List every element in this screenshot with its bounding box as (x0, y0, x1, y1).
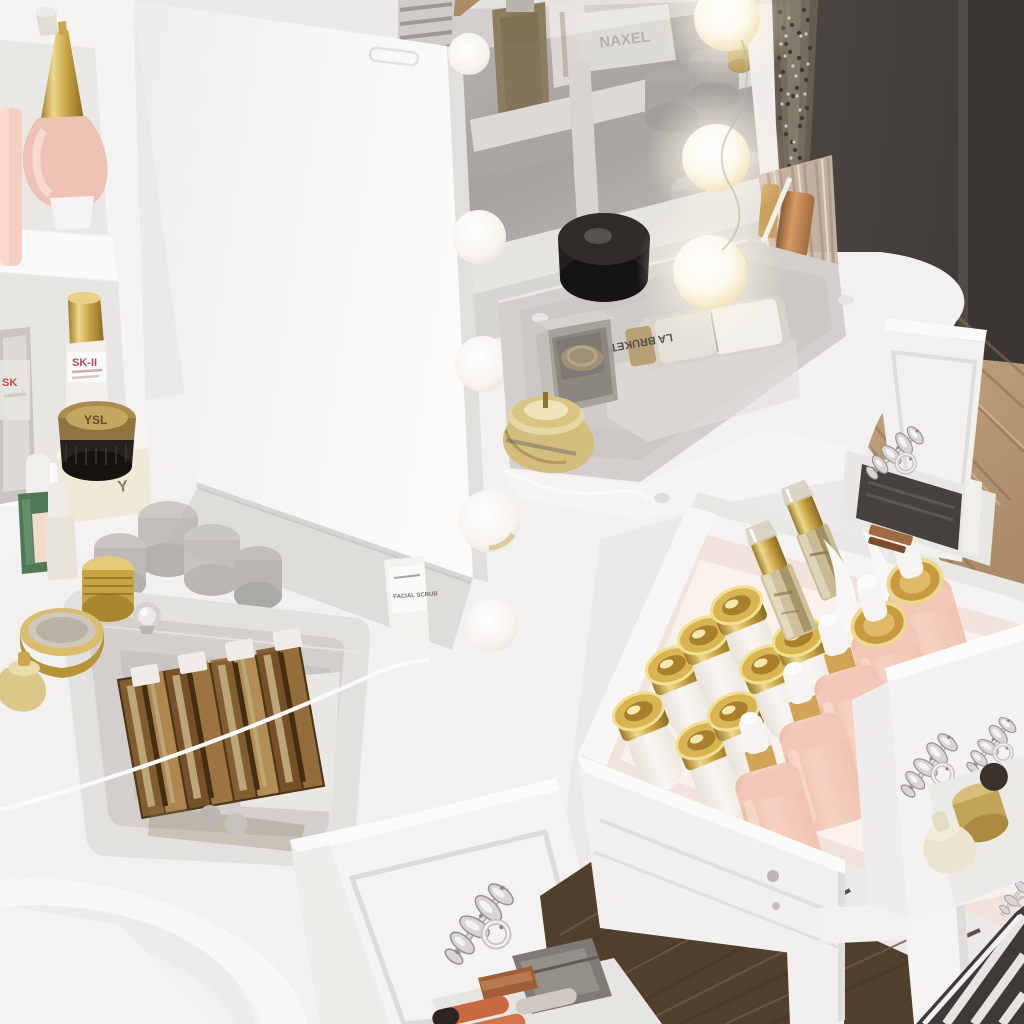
svg-text:SK: SK (2, 377, 17, 389)
svg-text:YSL: YSL (84, 413, 107, 427)
svg-text:Y: Y (117, 478, 130, 496)
svg-text:SK-II: SK-II (72, 357, 97, 369)
